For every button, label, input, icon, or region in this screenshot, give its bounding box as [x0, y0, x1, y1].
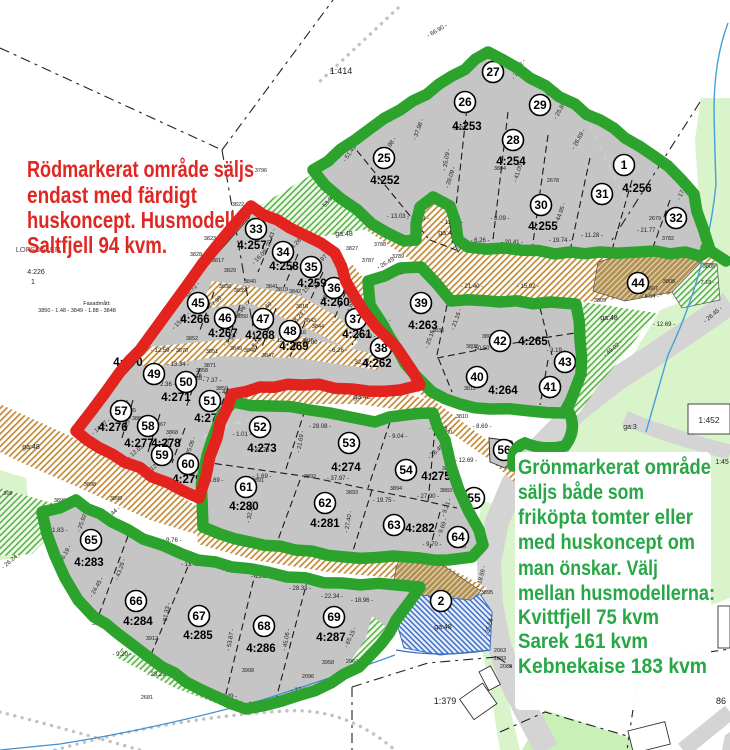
svg-text:58: 58	[141, 419, 155, 433]
svg-text:1:414: 1:414	[330, 66, 353, 76]
svg-text:säljs både som: säljs både som	[518, 480, 644, 504]
svg-text:4:284: 4:284	[123, 616, 153, 628]
svg-text:3788: 3788	[374, 242, 386, 248]
svg-text:- 27.90 -: - 27.90 -	[417, 494, 439, 500]
svg-text:3898: 3898	[84, 482, 96, 488]
svg-text:ga:3: ga:3	[623, 424, 637, 431]
svg-text:64: 64	[451, 530, 465, 544]
svg-text:3870: 3870	[176, 348, 188, 354]
svg-text:52: 52	[253, 420, 267, 434]
svg-text:Rödmarkerat område säljs: Rödmarkerat område säljs	[27, 156, 254, 182]
svg-text:Grönmarkerat område: Grönmarkerat område	[518, 455, 711, 479]
svg-text:309: 309	[3, 491, 12, 497]
svg-text:68: 68	[257, 619, 271, 633]
svg-text:ga:48: ga:48	[434, 624, 452, 631]
svg-text:3828: 3828	[190, 252, 202, 258]
svg-text:49: 49	[147, 367, 161, 381]
svg-text:friköpta tomter eller: friköpta tomter eller	[518, 505, 694, 529]
svg-text:- 13.03 -: - 13.03 -	[387, 214, 409, 220]
svg-text:3796: 3796	[255, 168, 267, 174]
svg-text:Kebnekaise 183 kvm: Kebnekaise 183 kvm	[518, 654, 707, 678]
svg-text:2063: 2063	[494, 648, 506, 654]
svg-text:- 7.37 -: - 7.37 -	[202, 378, 221, 384]
svg-text:4:268: 4:268	[245, 330, 275, 342]
svg-text:- 37.97 -: - 37.97 -	[327, 476, 349, 482]
svg-text:3850 - 1.48 - 3849 - 1.88 - 38: 3850 - 1.48 - 3849 - 1.88 - 3848	[38, 308, 116, 314]
svg-text:4:274: 4:274	[331, 462, 361, 474]
svg-text:3895: 3895	[481, 590, 493, 596]
svg-text:4:282: 4:282	[405, 523, 434, 535]
svg-text:- 11.28 -: - 11.28 -	[581, 233, 603, 239]
svg-text:51: 51	[203, 394, 217, 408]
svg-text:4:286: 4:286	[246, 643, 275, 655]
svg-text:48: 48	[283, 324, 297, 338]
svg-text:4:285: 4:285	[183, 630, 213, 642]
svg-text:- 9.04 -: - 9.04 -	[388, 434, 407, 440]
svg-text:- 8.69 -: - 8.69 -	[472, 424, 491, 430]
svg-text:40: 40	[470, 370, 484, 384]
svg-text:25: 25	[377, 151, 391, 165]
svg-text:- 28.33 -: - 28.33 -	[289, 586, 311, 592]
svg-text:mellan husmodellerna:: mellan husmodellerna:	[518, 581, 715, 605]
svg-text:4:255: 4:255	[528, 221, 558, 233]
svg-text:3840: 3840	[244, 279, 256, 285]
svg-text:ga:48: ga:48	[335, 231, 353, 238]
svg-text:50: 50	[179, 375, 193, 389]
svg-text:3847: 3847	[262, 353, 274, 359]
svg-text:man önskar. Välj: man önskar. Välj	[518, 556, 658, 580]
svg-text:57: 57	[114, 404, 128, 418]
svg-text:59: 59	[155, 448, 169, 462]
svg-text:4:253: 4:253	[452, 121, 481, 133]
svg-text:- 50.50 -: - 50.50 -	[471, 346, 493, 352]
svg-text:4:278: 4:278	[151, 438, 181, 450]
svg-text:54: 54	[399, 463, 413, 477]
svg-text:3817: 3817	[212, 258, 224, 264]
svg-text:3893: 3893	[346, 490, 358, 496]
svg-text:- 12.59 -: - 12.59 -	[151, 348, 173, 354]
svg-text:30: 30	[534, 198, 548, 212]
svg-text:31: 31	[595, 187, 609, 201]
svg-text:4:267: 4:267	[208, 328, 237, 340]
svg-text:4:271: 4:271	[161, 392, 191, 404]
svg-text:2083: 2083	[494, 656, 506, 662]
svg-text:3809: 3809	[594, 298, 606, 304]
svg-text:- 6.54 -: - 6.54 -	[641, 294, 659, 300]
svg-text:41: 41	[543, 380, 557, 394]
svg-text:Kvittfjell 75 kvm: Kvittfjell 75 kvm	[518, 605, 659, 629]
svg-text:69: 69	[327, 610, 341, 624]
svg-text:3894: 3894	[390, 486, 402, 492]
svg-text:43: 43	[558, 355, 572, 369]
svg-text:2679: 2679	[649, 216, 661, 222]
svg-text:4:254: 4:254	[496, 156, 526, 168]
svg-text:3844: 3844	[312, 324, 324, 330]
svg-text:3899: 3899	[110, 496, 122, 502]
svg-text:4:263: 4:263	[408, 320, 437, 332]
svg-text:28: 28	[506, 133, 520, 147]
svg-text:3805: 3805	[703, 264, 715, 270]
svg-text:60: 60	[181, 457, 195, 471]
svg-text:- 22.34 -: - 22.34 -	[321, 594, 343, 600]
svg-text:Fasadmått:: Fasadmått:	[83, 300, 111, 307]
svg-text:29: 29	[533, 98, 547, 112]
svg-text:ga:48: ga:48	[22, 444, 40, 451]
svg-text:3908: 3908	[242, 668, 254, 674]
svg-text:Saltfjell 94 kvm.: Saltfjell 94 kvm.	[27, 232, 167, 258]
svg-text:- 18.96 -: - 18.96 -	[351, 598, 373, 604]
svg-text:- 1.01 -: - 1.01 -	[232, 432, 251, 438]
svg-text:4:261: 4:261	[342, 329, 372, 341]
svg-text:endast med färdigt: endast med färdigt	[27, 182, 197, 208]
svg-text:- 12.69 -: - 12.69 -	[653, 322, 675, 328]
svg-text:- 21.40 -: - 21.40 -	[461, 284, 483, 290]
svg-text:53: 53	[342, 436, 356, 450]
svg-text:4:281: 4:281	[310, 518, 340, 530]
svg-text:2082: 2082	[500, 664, 512, 670]
svg-text:4:273: 4:273	[247, 443, 276, 455]
svg-text:4:256: 4:256	[622, 183, 651, 195]
svg-text:4:277: 4:277	[124, 438, 153, 450]
svg-text:Sarek 161 kvm: Sarek 161 kvm	[518, 629, 648, 653]
svg-text:47: 47	[256, 312, 270, 326]
svg-text:- 15.92 -: - 15.92 -	[517, 284, 539, 290]
svg-text:86: 86	[716, 696, 726, 706]
svg-text:3852: 3852	[186, 336, 198, 342]
svg-text:42: 42	[493, 334, 507, 348]
svg-text:3810: 3810	[456, 414, 468, 420]
svg-text:4:280: 4:280	[229, 501, 258, 513]
svg-text:- 19.75 -: - 19.75 -	[373, 498, 395, 504]
svg-text:4:260: 4:260	[320, 297, 349, 309]
svg-text:44: 44	[631, 276, 645, 290]
svg-text:3782: 3782	[662, 236, 674, 242]
svg-text:4:276: 4:276	[98, 422, 127, 434]
svg-text:- 19.74 -: - 19.74 -	[549, 238, 571, 244]
svg-text:32: 32	[669, 211, 683, 225]
svg-text:- 9.20 -: - 9.20 -	[112, 652, 131, 658]
svg-text:- 12.69 -: - 12.69 -	[455, 458, 477, 464]
svg-text:4:264: 4:264	[488, 385, 518, 397]
svg-text:27: 27	[486, 65, 500, 79]
svg-text:- 28.08 -: - 28.08 -	[309, 424, 331, 430]
svg-text:4:283: 4:283	[74, 557, 103, 569]
svg-text:med huskoncept om: med huskoncept om	[518, 530, 695, 554]
svg-text:- 8.09 -: - 8.09 -	[490, 216, 509, 222]
svg-text:3808: 3808	[663, 279, 675, 285]
svg-text:3839: 3839	[234, 288, 246, 294]
svg-text:62: 62	[318, 496, 332, 510]
svg-text:39: 39	[414, 296, 428, 310]
svg-text:66: 66	[129, 594, 143, 608]
svg-text:4:265: 4:265	[518, 336, 548, 348]
svg-text:35: 35	[304, 260, 318, 274]
svg-text:45: 45	[191, 296, 205, 310]
svg-text:4:259: 4:259	[297, 278, 326, 290]
svg-text:1: 1	[31, 279, 35, 286]
svg-text:2096: 2096	[302, 674, 314, 680]
svg-text:- 1.69 -: - 1.69 -	[252, 474, 271, 480]
svg-text:4:262: 4:262	[362, 358, 391, 370]
svg-text:1:379: 1:379	[434, 696, 457, 706]
svg-text:61: 61	[239, 480, 253, 494]
svg-text:1:45: 1:45	[715, 459, 729, 466]
svg-text:3958: 3958	[322, 660, 334, 666]
svg-text:46: 46	[218, 311, 232, 325]
svg-text:3838: 3838	[219, 284, 231, 290]
svg-text:4:287: 4:287	[316, 632, 345, 644]
svg-text:34: 34	[276, 245, 290, 259]
svg-text:1: 1	[621, 158, 628, 172]
svg-text:3851: 3851	[206, 349, 218, 355]
svg-text:4:226: 4:226	[27, 269, 45, 276]
svg-text:ga:48: ga:48	[600, 315, 618, 322]
svg-text:2678: 2678	[547, 178, 559, 184]
svg-text:2: 2	[438, 594, 445, 608]
svg-text:65: 65	[84, 533, 98, 547]
svg-text:- 7.18 -: - 7.18 -	[697, 280, 715, 286]
svg-text:4:258: 4:258	[269, 261, 299, 273]
svg-text:- 6.26 -: - 6.26 -	[328, 348, 347, 354]
svg-text:4:266: 4:266	[180, 314, 209, 326]
svg-text:67: 67	[192, 609, 206, 623]
svg-text:3883: 3883	[440, 488, 452, 494]
svg-text:3849: 3849	[230, 346, 242, 352]
svg-text:4:275: 4:275	[421, 471, 451, 483]
svg-text:3787: 3787	[362, 258, 374, 264]
svg-text:3827: 3827	[346, 246, 358, 252]
svg-text:26: 26	[458, 95, 472, 109]
svg-text:4:257: 4:257	[237, 240, 266, 252]
svg-text:3819: 3819	[276, 287, 288, 293]
svg-text:2681: 2681	[141, 695, 153, 701]
svg-text:huskoncept. Husmodell: huskoncept. Husmodell	[27, 207, 235, 233]
svg-text:1:452: 1:452	[698, 415, 720, 425]
svg-text:3892: 3892	[304, 474, 316, 480]
svg-text:4:252: 4:252	[370, 175, 399, 187]
svg-text:36: 36	[327, 281, 341, 295]
svg-text:- 21.77 -: - 21.77 -	[637, 228, 659, 234]
svg-text:3912: 3912	[146, 636, 158, 642]
svg-text:- 13.34 -: - 13.34 -	[167, 362, 189, 368]
svg-text:33: 33	[249, 222, 263, 236]
svg-text:3829: 3829	[224, 268, 236, 274]
svg-text:63: 63	[387, 518, 401, 532]
svg-text:- 9.70 -: - 9.70 -	[422, 542, 441, 548]
svg-text:4:269: 4:269	[279, 341, 308, 353]
